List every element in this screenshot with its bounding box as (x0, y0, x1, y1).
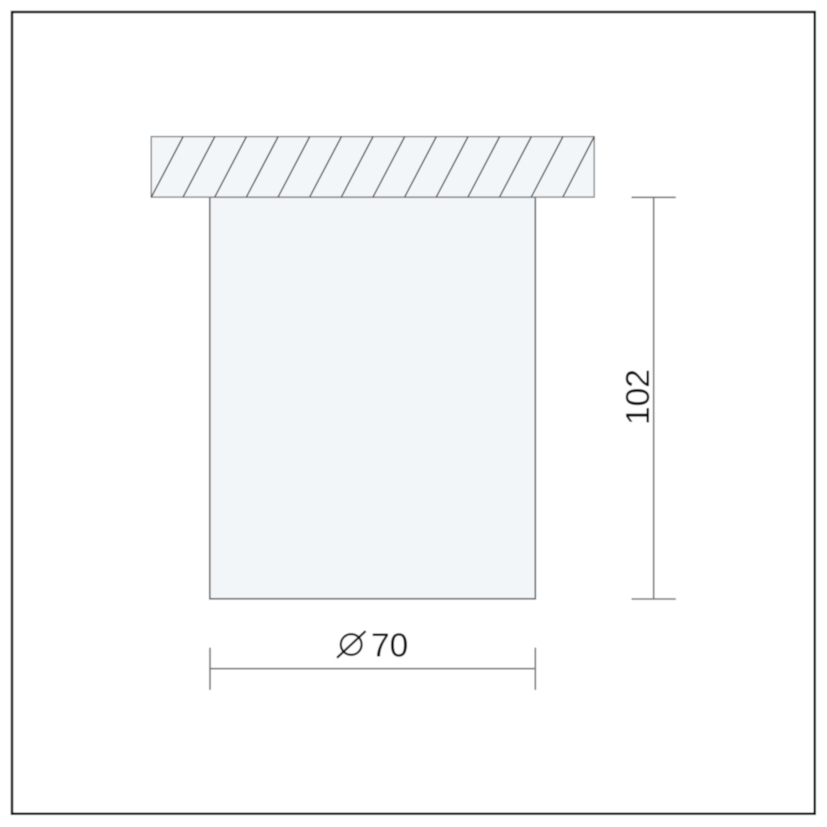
svg-text:102: 102 (620, 369, 657, 425)
svg-text:70: 70 (371, 628, 408, 665)
